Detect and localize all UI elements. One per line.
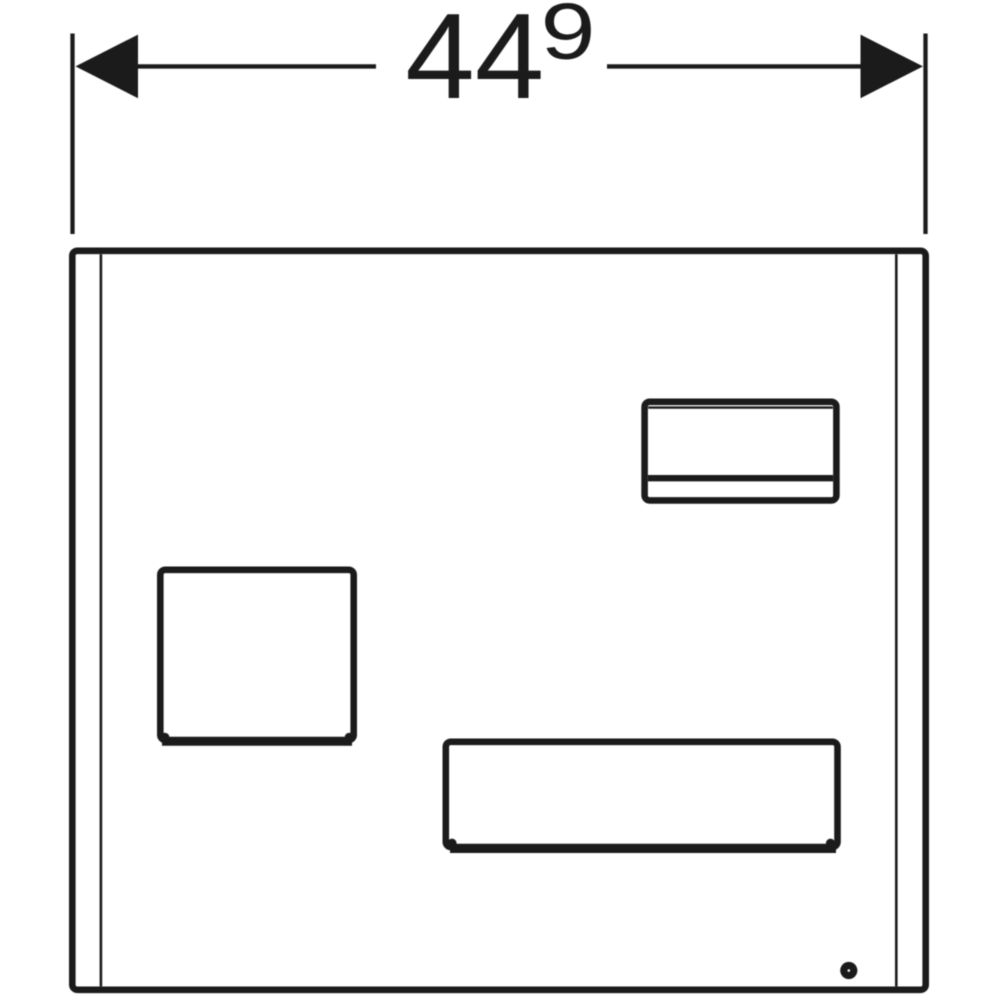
svg-text:44: 44 [405,0,544,124]
svg-text:9: 9 [541,0,596,76]
